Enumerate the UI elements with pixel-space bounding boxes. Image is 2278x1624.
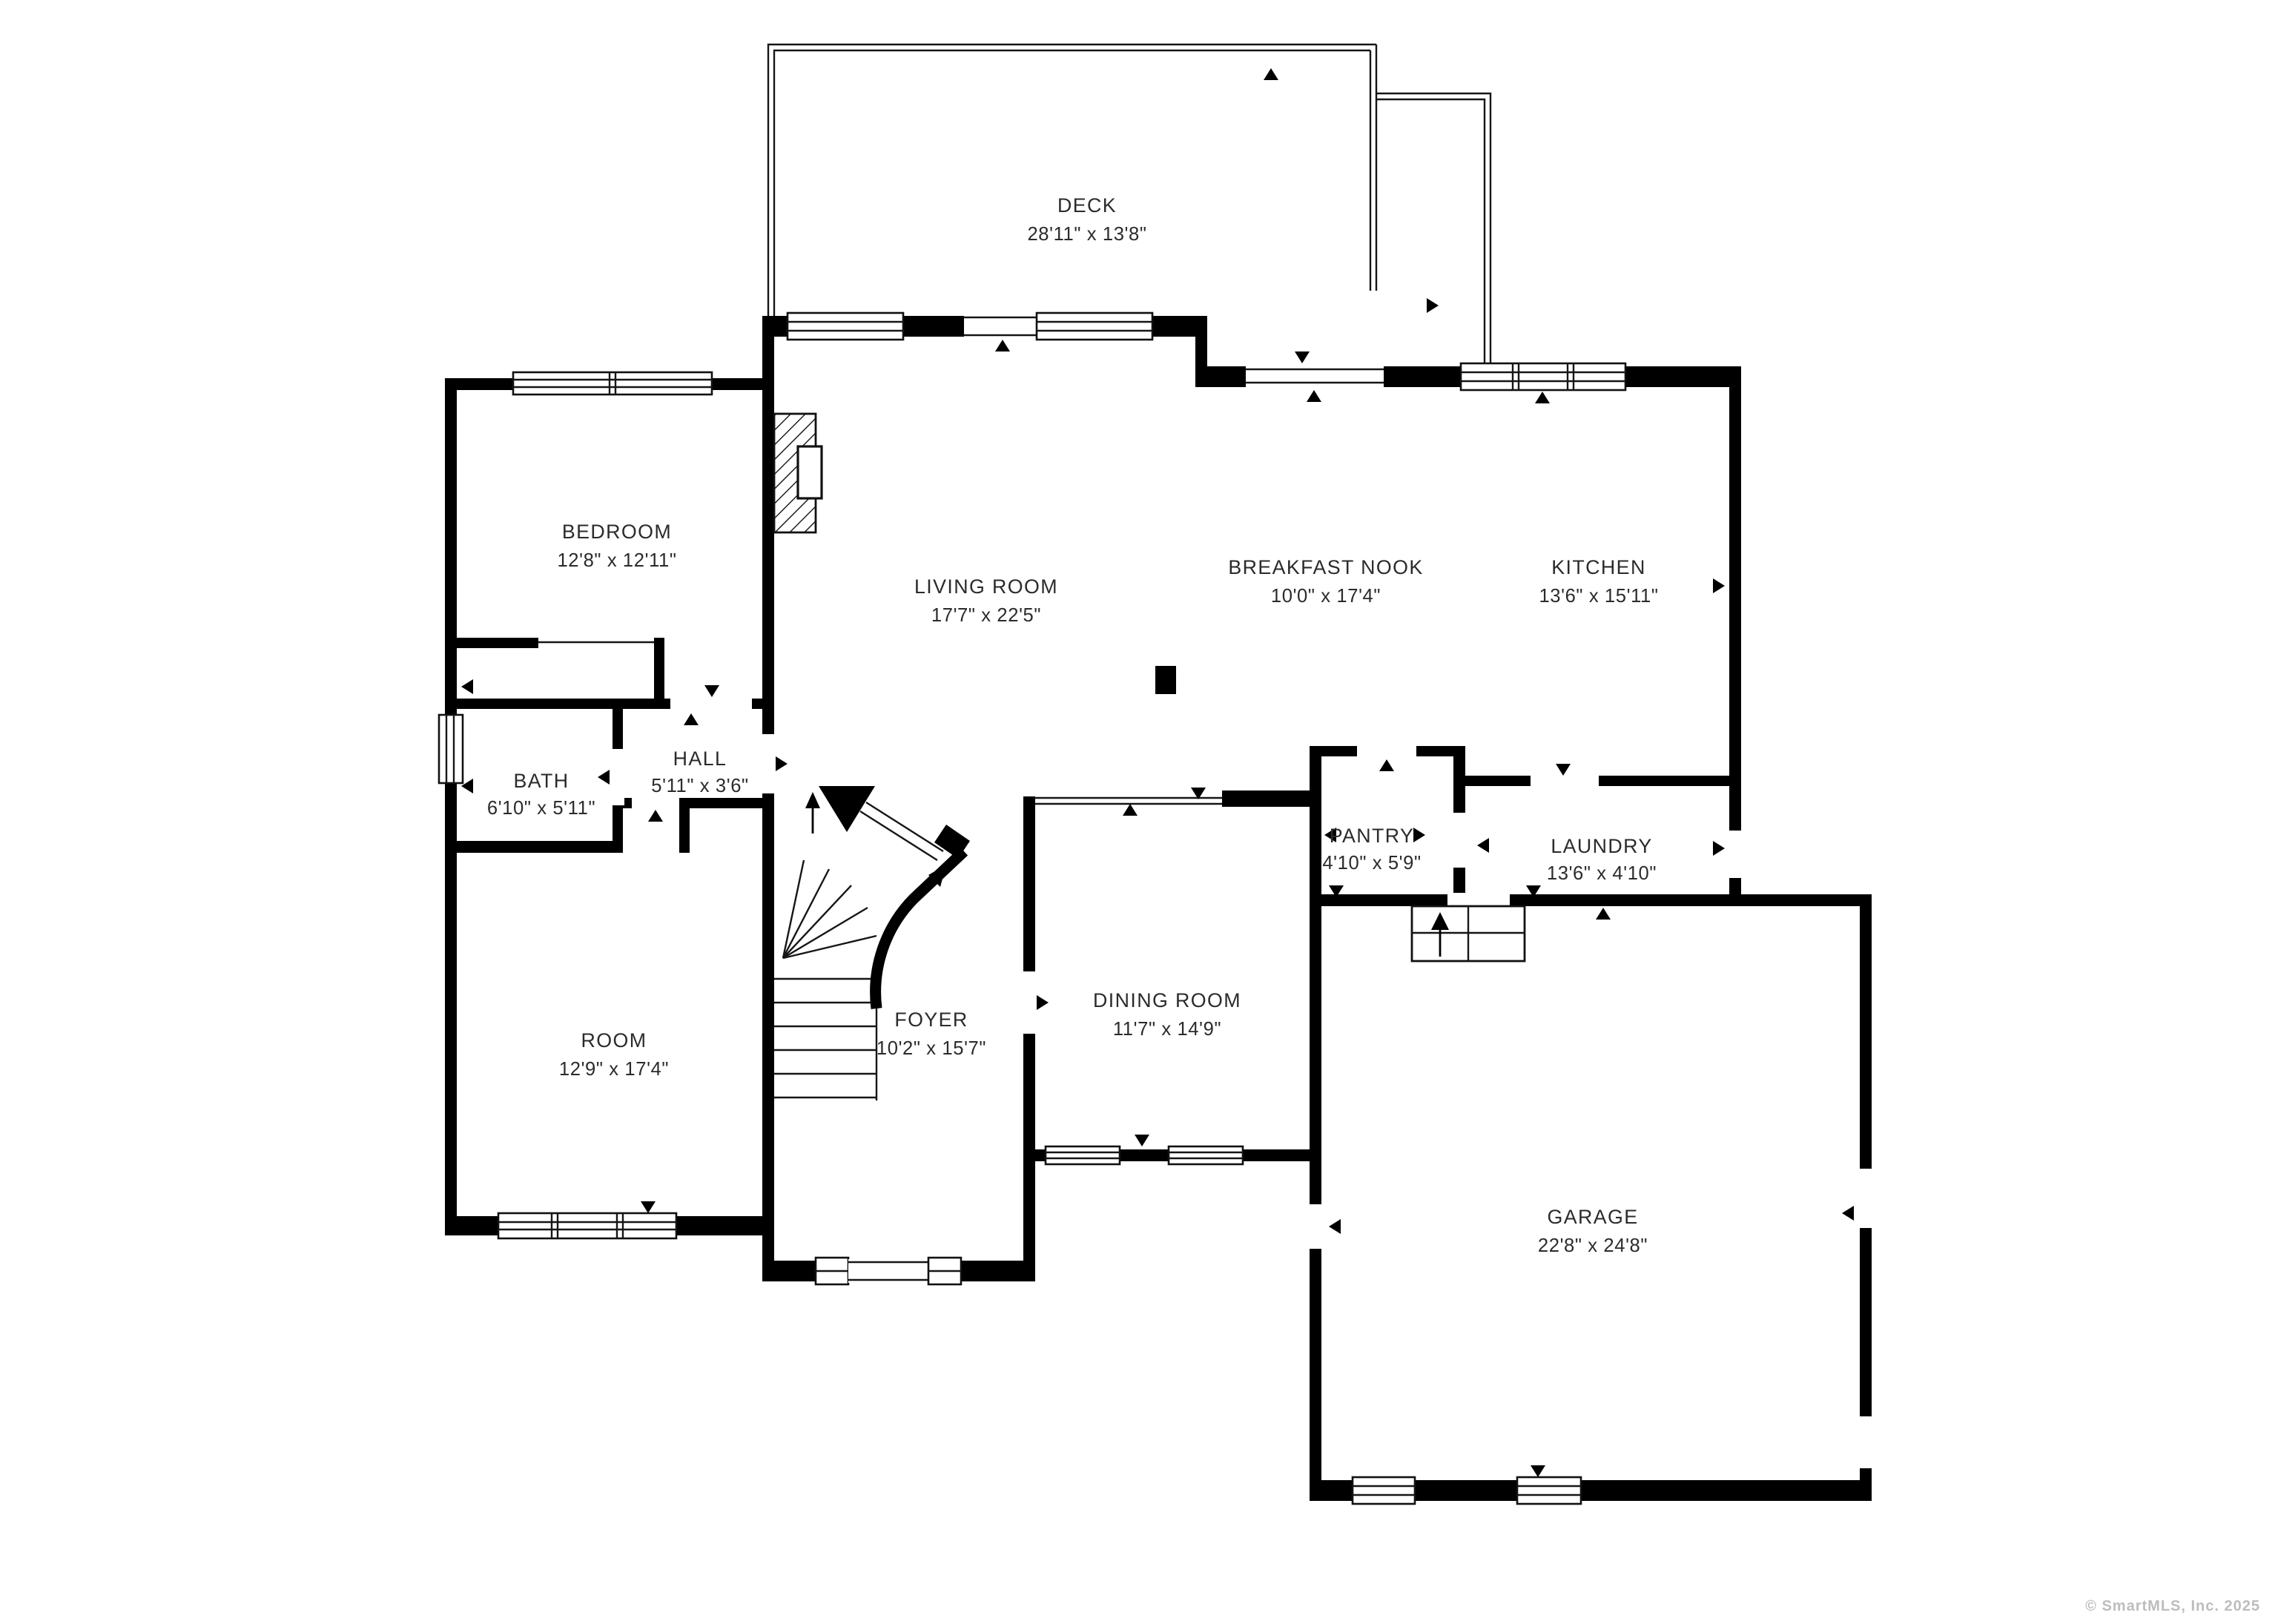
fireplace	[774, 414, 822, 532]
deck-dims: 28'11" x 13'8"	[1027, 224, 1146, 245]
foyer-dims: 10'2" x 15'7"	[876, 1038, 986, 1059]
foyer-label: FOYER	[894, 1009, 968, 1031]
garage-steps	[1412, 906, 1525, 961]
deck-label: DECK	[1057, 194, 1117, 217]
living-room-label: LIVING ROOM	[914, 575, 1058, 598]
wall-openings	[538, 314, 1873, 1468]
garage-door-left	[1353, 1477, 1415, 1504]
room-labels: DECK 28'11" x 13'8" BEDROOM 12'8" x 12'1…	[487, 194, 1659, 1256]
living-room-slider-left	[788, 313, 903, 340]
column	[1155, 666, 1176, 694]
floor-plan-drawing: DECK 28'11" x 13'8" BEDROOM 12'8" x 12'1…	[0, 0, 2278, 1624]
bedroom-window	[513, 372, 712, 395]
bedroom-label: BEDROOM	[562, 521, 672, 543]
pantry-dims: 4'10" x 5'9"	[1322, 853, 1421, 874]
garage-label: GARAGE	[1547, 1206, 1638, 1228]
bedroom-dims: 12'8" x 12'11"	[557, 550, 676, 571]
kitchen-label: KITCHEN	[1551, 556, 1645, 578]
hall-label: HALL	[673, 747, 727, 770]
dining-window-left	[1046, 1146, 1120, 1164]
room-window	[498, 1213, 676, 1238]
living-room-slider-right	[1037, 313, 1152, 340]
living-room-dims: 17'7" x 22'5"	[931, 605, 1041, 626]
walls	[445, 316, 1872, 1501]
entry-door	[816, 1258, 961, 1284]
garage-dims: 22'8" x 24'8"	[1538, 1235, 1648, 1256]
laundry-dims: 13'6" x 4'10"	[1547, 863, 1657, 884]
breakfast-nook-dims: 10'0" x 17'4"	[1271, 586, 1381, 607]
room-dims: 12'9" x 17'4"	[559, 1059, 669, 1080]
pantry-label: PANTRY	[1330, 825, 1415, 847]
room-label: ROOM	[581, 1029, 647, 1052]
kitchen-window	[1461, 363, 1625, 390]
laundry-label: LAUNDRY	[1551, 835, 1652, 857]
breakfast-nook-label: BREAKFAST NOOK	[1228, 556, 1423, 578]
bath-label: BATH	[513, 770, 569, 792]
floor-plan: DECK 28'11" x 13'8" BEDROOM 12'8" x 12'1…	[0, 0, 2278, 1624]
bath-window	[439, 715, 463, 783]
dining-room-label: DINING ROOM	[1093, 989, 1241, 1011]
smartmls-watermark: © SmartMLS, Inc. 2025	[2085, 1598, 2260, 1614]
dining-room-dims: 11'7" x 14'9"	[1113, 1019, 1221, 1040]
dining-window-right	[1169, 1146, 1243, 1164]
kitchen-dims: 13'6" x 15'11"	[1539, 586, 1658, 607]
door-swing-markers	[461, 68, 1854, 1477]
bath-dims: 6'10" x 5'11"	[487, 798, 595, 819]
hall-dims: 5'11" x 3'6"	[651, 776, 748, 796]
garage-door-right	[1517, 1477, 1581, 1504]
